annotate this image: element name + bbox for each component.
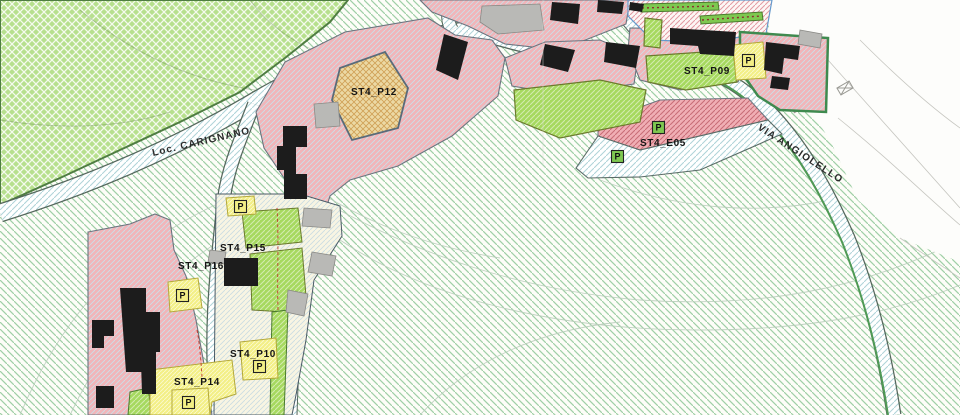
parking-icon: P xyxy=(653,122,665,134)
parking-letter: P xyxy=(256,362,262,372)
parking-icon: P xyxy=(177,290,189,302)
parking-icon: P xyxy=(235,201,247,213)
zone-label-st4-p12: ST4_P12 xyxy=(351,87,397,98)
zone-label-st4-e05: ST4_E05 xyxy=(640,138,686,149)
parking-letter: P xyxy=(185,398,191,408)
parking-icon: P xyxy=(183,397,195,409)
zone-label-st4-p15: ST4_P15 xyxy=(220,243,266,254)
parking-letter: P xyxy=(614,152,620,162)
zone-label-st4-p14: ST4_P14 xyxy=(174,377,220,388)
parking-icon: P xyxy=(254,361,266,373)
parking-icon: P xyxy=(612,151,624,163)
parking-letter: P xyxy=(745,56,751,66)
parking-letter: P xyxy=(655,123,661,133)
parking-icon: P xyxy=(743,55,755,67)
zone-label-st4-p16: ST4_P16 xyxy=(178,261,224,272)
parking-letter: P xyxy=(237,202,243,212)
zone-label-st4-p09: ST4_P09 xyxy=(684,66,730,77)
zone-label-st4-p10: ST4_P10 xyxy=(230,349,276,360)
green-strip xyxy=(644,18,662,48)
zoning-map-canvas: P P P P P P P Loc. CARIGNANO VIA ANGIOLE… xyxy=(0,0,960,415)
zoning-map: P P P P P P P Loc. CARIGNANO VIA ANGIOLE… xyxy=(0,0,960,415)
parking-letter: P xyxy=(179,291,185,301)
